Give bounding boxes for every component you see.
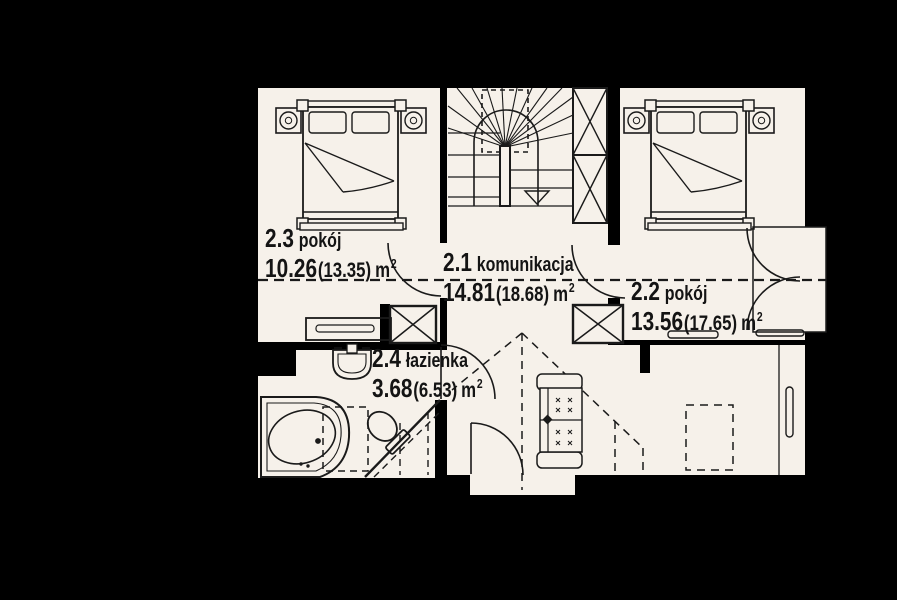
room-2-3-area-alt: (13.35) (318, 259, 371, 282)
room-2-2-name: pokój (665, 283, 708, 305)
faucet-icon (347, 344, 357, 353)
wall-stub-hall (640, 345, 650, 373)
vent-shaft-right (573, 305, 623, 343)
room-2-4-area: 3.68 (372, 373, 412, 403)
room-2-1-area-alt: (18.68) (496, 283, 549, 306)
room-2-2-area-alt: (17.65) (684, 312, 737, 335)
bed-post (395, 100, 406, 111)
pillow (352, 112, 389, 133)
floor-hall (447, 345, 805, 475)
bed-post (297, 100, 308, 111)
wall-chunk-bathroom-nw (256, 342, 296, 376)
vent-shaft-left (390, 306, 436, 343)
sofa (537, 374, 582, 468)
chimney-shaft (573, 88, 607, 223)
pillow (309, 112, 346, 133)
room-label-2-3: 2.3pokój 10.26(13.35)m2 (265, 226, 397, 285)
room-2-1-name: komunikacja (477, 254, 574, 276)
room-label-2-1: 2.1komunikacja 14.81(18.68)m2 (443, 250, 575, 309)
room-2-1-area: 14.81 (443, 277, 495, 307)
room-2-1-number: 2.1 (443, 247, 472, 277)
tub-drain (316, 439, 321, 444)
room-label-2-2: 2.2pokój 13.56(17.65)m2 (631, 279, 763, 338)
stair-newel (500, 146, 510, 206)
room-2-3-area: 10.26 (265, 253, 317, 283)
room-2-4-name: łazienka (406, 350, 468, 372)
room-2-4-area-alt: (6.53) (413, 379, 457, 402)
floor-plan-page: 2.3pokój 10.26(13.35)m2 2.1komunikacja 1… (0, 0, 897, 600)
sofa-armrest (537, 452, 582, 468)
room-2-2-area: 13.56 (631, 306, 683, 336)
door-opening-2-2 (608, 245, 620, 298)
room-label-2-4: 2.4łazienka 3.68(6.53)m2 (372, 346, 483, 405)
room-2-3-number: 2.3 (265, 223, 294, 253)
room-2-2-number: 2.2 (631, 276, 660, 306)
room-2-4-number: 2.4 (372, 343, 401, 373)
room-2-3-name: pokój (299, 230, 342, 252)
